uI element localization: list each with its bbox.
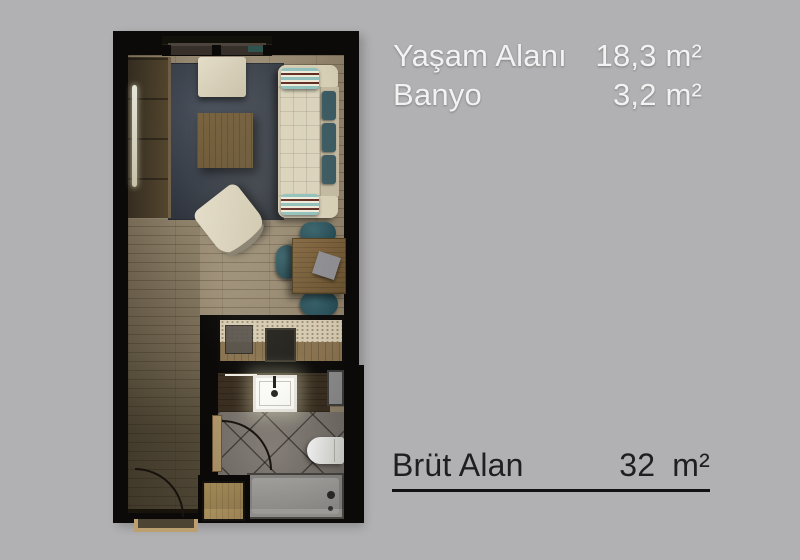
bathtub-tap [327,491,335,499]
dining-table [292,238,346,294]
washing-machine [327,370,344,406]
total-value-group: 32 m² [619,447,710,483]
dining-chair [300,292,338,316]
coffee-table [197,113,253,168]
bathtub [247,473,344,519]
kitchen-counter [218,315,344,373]
window-mullion [212,45,221,55]
shoe-cabinet [202,481,245,521]
toilet-seam [334,439,335,462]
window-mullion [162,45,171,55]
throw-pillow [281,68,319,89]
bathtub-basin [252,478,339,514]
wall-notch [358,365,364,523]
back-cushion [322,91,336,120]
window-mullion [263,45,272,55]
faucet [273,376,276,388]
sofa [278,65,338,218]
mirror-strip [132,85,137,187]
bathroom-door [212,415,222,472]
gross-area-total: Brüt Alan 32 m² [392,447,710,492]
cooktop [265,328,296,362]
wardrobe [128,57,171,218]
entry-door [134,519,198,532]
napkin [312,251,341,280]
legend-row-living: Yaşam Alanı 18,3 m² [393,36,702,75]
back-cushion [322,155,336,184]
window [162,36,272,56]
wash-basin [253,375,297,412]
bathtub-drain [328,506,333,511]
legend-row-bathroom: Banyo 3,2 m² [393,75,702,114]
back-cushion [322,123,336,152]
pouf [198,57,246,97]
legend-value-bathroom: 3,2 m² [613,75,702,114]
total-unit: m² [672,447,710,483]
sofa-seat [280,87,320,196]
toilet [307,437,344,464]
legend-value-living: 18,3 m² [596,36,703,75]
total-value: 32 [619,447,655,483]
throw-pillow [281,194,319,215]
drain [271,390,278,397]
legend-label-living: Yaşam Alanı [393,36,567,75]
kitchen-appliance [225,325,253,354]
total-label: Brüt Alan [392,447,524,483]
area-legend: Yaşam Alanı 18,3 m² Banyo 3,2 m² [393,36,702,114]
legend-label-bathroom: Banyo [393,75,482,114]
floor-plan [113,31,359,523]
